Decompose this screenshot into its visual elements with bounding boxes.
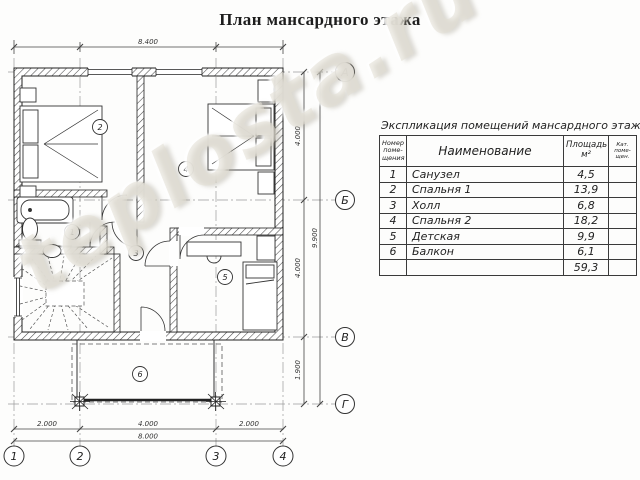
- cell-cat: [609, 244, 637, 260]
- cell-cat: [609, 182, 637, 198]
- cell-area: 4,5: [564, 167, 609, 183]
- room-number: 3: [133, 249, 138, 258]
- table-row: 6 Балкон 6,1: [380, 244, 637, 260]
- header-area: Площадь м²: [564, 136, 609, 167]
- room-number: 1: [69, 228, 74, 237]
- dim-bottom-2: 4.000: [138, 420, 159, 428]
- cell-name: Санузел: [407, 167, 564, 183]
- axis-label-b: Б: [341, 194, 349, 207]
- cell-cat: [609, 167, 637, 183]
- room-number: 4: [183, 165, 188, 174]
- axis-label-1: 1: [11, 450, 18, 463]
- cell-cat: [609, 213, 637, 229]
- header-category: Кат. поме- щен.: [609, 136, 637, 167]
- cell-area: 18,2: [564, 213, 609, 229]
- table-row: 4 Спальня 2 18,2: [380, 213, 637, 229]
- table-caption: Экспликация помещений мансардного этажа: [381, 119, 628, 132]
- cell-area: 9,9: [564, 229, 609, 245]
- axis-label-v: В: [341, 331, 349, 344]
- cell-name: Балкон: [407, 244, 564, 260]
- cell-num: 5: [380, 229, 407, 245]
- dim-right-2: 4.000: [294, 257, 302, 278]
- cell-num: 6: [380, 244, 407, 260]
- dim-right-total: 9.900: [311, 227, 319, 248]
- bed-room2: [20, 88, 102, 200]
- table-row: 2 Спальня 1 13,9: [380, 182, 637, 198]
- cell-cat: [609, 198, 637, 214]
- dim-bottom-1: 2.000: [37, 420, 58, 428]
- cell-area: 6,1: [564, 244, 609, 260]
- room-number: 6: [137, 370, 142, 379]
- cell-name: Спальня 2: [407, 213, 564, 229]
- bed-room4: [208, 80, 274, 194]
- cell-num: 2: [380, 182, 407, 198]
- childrens-room-furniture: [187, 236, 277, 330]
- table-header-row: Номер поме- щения Наименование Площадь м…: [380, 136, 637, 167]
- axis-bubbles-rows: А Б В Г: [336, 63, 355, 414]
- table-total-row: 59,3: [380, 260, 637, 276]
- balcony-columns: [70, 392, 226, 411]
- dim-right-3: 1.900: [294, 359, 302, 380]
- axis-bubbles-cols: 1 2 3 4: [4, 446, 293, 466]
- cell-area: 13,9: [564, 182, 609, 198]
- axis-label-g: Г: [342, 398, 349, 411]
- axis-label-3: 3: [213, 450, 220, 463]
- cell-num-empty: [380, 260, 407, 276]
- room-number: 2: [97, 123, 102, 132]
- cell-cat: [609, 229, 637, 245]
- header-room-number: Номер поме- щения: [380, 136, 407, 167]
- cell-cat-empty: [609, 260, 637, 276]
- explication-block: Экспликация помещений мансардного этажа …: [379, 119, 628, 276]
- cell-area: 6,8: [564, 198, 609, 214]
- door-swings: [90, 195, 204, 331]
- balcony: [70, 340, 226, 411]
- cell-name: Холл: [407, 198, 564, 214]
- cell-name-empty: [407, 260, 564, 276]
- table-row: 5 Детская 9,9: [380, 229, 637, 245]
- cell-total-area: 59,3: [564, 260, 609, 276]
- room-number: 5: [222, 273, 227, 282]
- staircase: [20, 256, 112, 330]
- axis-label-4: 4: [280, 450, 287, 463]
- table-row: 1 Санузел 4,5: [380, 167, 637, 183]
- cell-name: Детская: [407, 229, 564, 245]
- dim-bottom-3: 2.000: [239, 420, 260, 428]
- cell-num: 1: [380, 167, 407, 183]
- axis-label-a: А: [340, 66, 349, 79]
- cell-num: 3: [380, 198, 407, 214]
- axis-label-2: 2: [77, 450, 84, 463]
- cell-name: Спальня 1: [407, 182, 564, 198]
- dim-bottom-total: 8.000: [138, 433, 159, 441]
- dim-top-total: 8.400: [138, 38, 159, 46]
- dim-right-1: 4.000: [294, 125, 302, 146]
- explication-table: Номер поме- щения Наименование Площадь м…: [379, 135, 637, 276]
- cell-num: 4: [380, 213, 407, 229]
- table-row: 3 Холл 6,8: [380, 198, 637, 214]
- header-room-name: Наименование: [407, 136, 564, 167]
